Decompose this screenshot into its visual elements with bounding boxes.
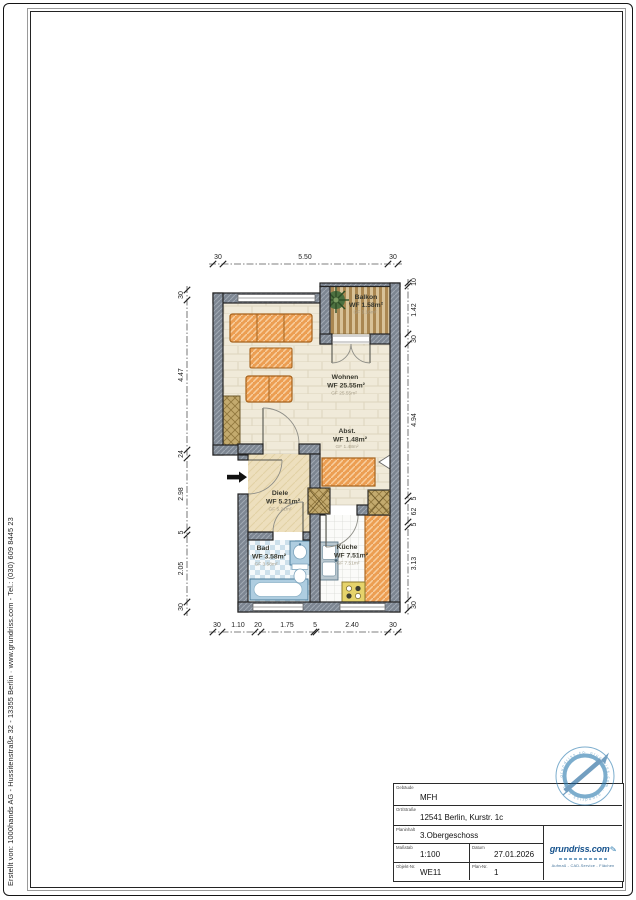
room-area-gf: GF 1.48m² [336,444,359,450]
svg-text:62: 62 [411,508,418,516]
field-datum: Datum 27.01.2026 [470,844,543,863]
bathroom-sink [290,541,310,565]
svg-text:30: 30 [178,603,185,611]
room-area-wf: WF 7.51m² [334,553,369,560]
window-bad [253,604,303,611]
room-area-gf: GF 3.58m² [255,562,278,568]
room-area-gf: GF 3.16m² [354,310,377,316]
svg-text:30: 30 [411,335,418,343]
field-massstab: Maßstab 1:100 [394,844,470,863]
room-label: Diele [272,490,288,497]
svg-text:30: 30 [411,601,418,609]
logo-cell: grundriss.com✎ Aufmaß - CAD-Service - Fl… [543,826,622,880]
svg-text:4.94: 4.94 [411,413,418,427]
svg-text:1.42: 1.42 [411,303,418,317]
svg-text:20: 20 [254,622,262,629]
room-area-gf: GF 5.21m² [269,507,292,513]
room-label: Balkon [355,294,378,301]
wardrobe [322,458,375,486]
field-planinhalt: Planinhalt 3.Obergeschoss [394,826,543,844]
svg-text:30: 30 [213,622,221,629]
cabinet [222,396,240,452]
window-top [238,295,315,302]
svg-text:5.50: 5.50 [298,254,312,261]
room-area-wf: WF 5.21m² [266,499,301,506]
sofa-small [246,376,292,402]
floor-plan-sheet: Erstellt von: 1000hands AG - Hussitenstr… [0,0,636,900]
field-plan-nr: Plan-Nr. 1 [470,863,543,880]
svg-text:30: 30 [178,291,185,299]
company-stamp: · grundriss.com · grundriss.com · grundr… [550,741,620,811]
svg-text:2.05: 2.05 [178,562,185,576]
sofa-large [230,314,312,342]
kitchen-counter [365,515,390,602]
svg-text:1.75: 1.75 [280,622,294,629]
svg-text:5: 5 [411,522,418,526]
dimension-chain-top: 30 5.50 30 [209,254,402,267]
room-area-wf: WF 3.58m² [252,554,287,561]
shaft-right [368,490,390,515]
floor-plan-drawing: Balkon WF 1.58m² GF 3.16m² Wohnen WF 25.… [175,250,435,650]
shaft-left [308,488,330,514]
balcony-threshold [332,336,370,342]
svg-text:5: 5 [411,496,418,500]
room-area-gf: GF 25.55m² [331,391,357,397]
entrance-arrow [227,472,247,483]
room-area-wf: WF 1.48m² [333,437,368,444]
credit-line: Erstellt von: 1000hands AG - Hussitenstr… [6,14,15,886]
room-area-wf: WF 25.55m² [327,383,366,390]
dimension-chain-left: 30 4.47 24 2.98 5 2.05 30 [178,286,190,616]
svg-text:10: 10 [411,278,418,286]
svg-text:30: 30 [389,254,397,261]
svg-text:30: 30 [214,254,222,261]
svg-text:30: 30 [389,622,397,629]
room-label: Wohnen [332,374,359,381]
room-area-gf: GF 7.51m² [337,561,360,567]
pencil-icon: ✎ [609,844,617,854]
svg-text:3.13: 3.13 [411,557,418,571]
svg-text:5: 5 [313,622,317,629]
room-label: Abst. [339,428,356,435]
svg-text:2.40: 2.40 [345,622,359,629]
window-kueche [340,604,385,611]
svg-text:· grundriss.com · grundriss.co: · grundriss.com · grundriss.com · grundr… [550,741,612,803]
field-objekt-nr: Objekt-Nr. WE11 [394,863,470,880]
brand-logo: grundriss.com✎ [550,839,617,857]
dimension-chain-right: 10 1.42 30 4.94 5 62 5 3.13 30 [405,278,418,616]
room-label: Küche [337,544,358,551]
svg-text:24: 24 [178,450,185,458]
logo-tagline [559,858,607,860]
coffee-table [250,348,292,368]
room-label: Bad [257,545,270,552]
room-area-wf: WF 1.58m² [349,302,384,309]
svg-text:2.98: 2.98 [178,487,185,501]
stove [342,582,365,602]
svg-text:4.47: 4.47 [178,368,185,382]
svg-text:1.10: 1.10 [231,622,245,629]
kitchen-sink-unit [320,542,338,580]
svg-text:5: 5 [178,530,185,534]
dimension-chain-bottom: 30 1.10 20 1.75 5 2.40 30 [209,622,402,635]
